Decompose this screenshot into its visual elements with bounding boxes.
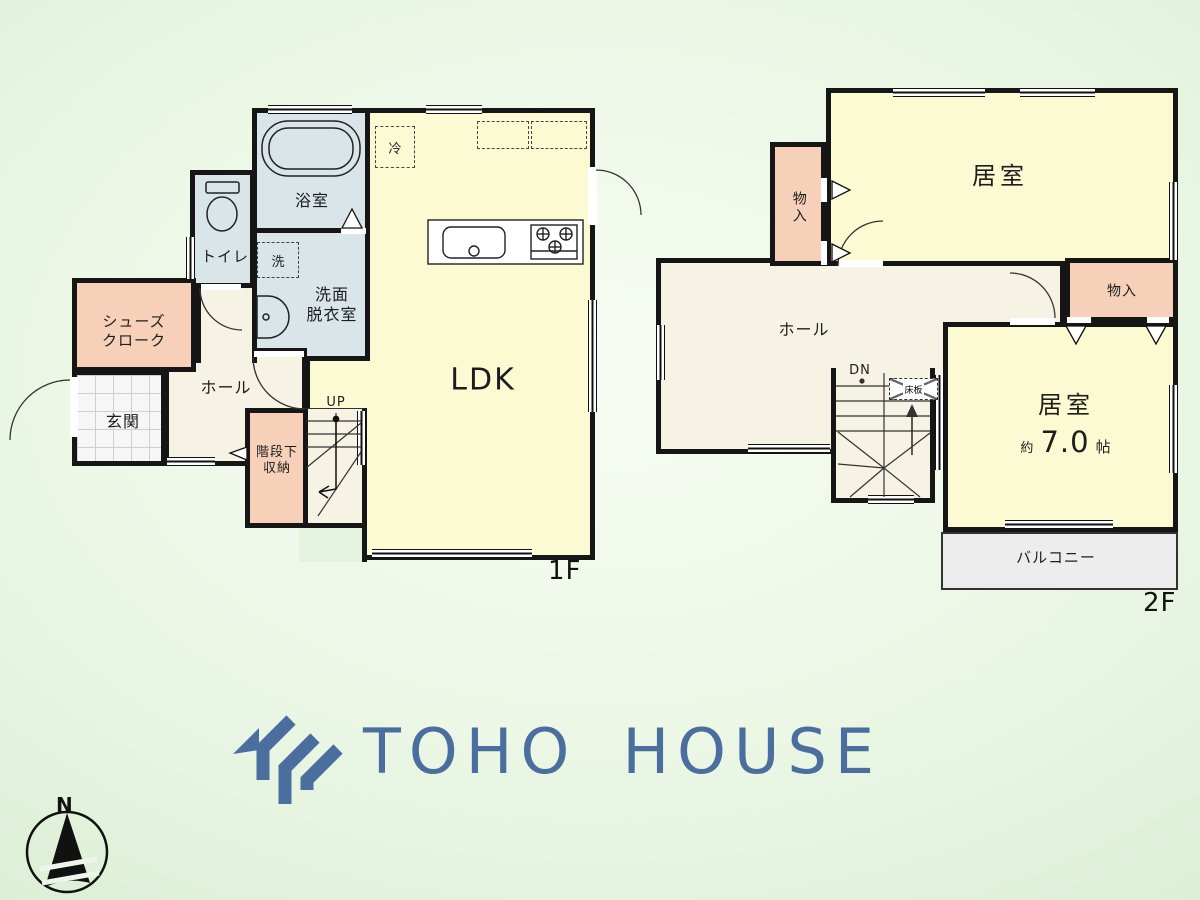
room-label-shoes-closet: シューズ クローク [102,312,166,350]
fridge-box: 冷 [375,126,415,168]
room-label-bath: 浴室 [295,191,329,211]
closet-right-label: 物入 [1107,283,1137,301]
logo: TOHO HOUSE [233,692,882,810]
door-opening [1147,317,1169,323]
door-opening [341,228,366,234]
closet-left-label: 物入 [789,191,807,225]
room-label-bedroom-right: 居室 [1038,390,1094,420]
logo-text: TOHO HOUSE [363,715,882,788]
door-opening [1067,317,1091,323]
room-label-bedroom-top: 居室 [972,161,1028,191]
window [1005,520,1113,529]
bedroom-right-size: 約 7.0 帖 [1020,424,1111,460]
cupboard-box [477,121,529,149]
window [426,105,482,114]
door-opening [254,351,304,357]
stair-up-label: UP [326,395,345,411]
window [1169,385,1178,473]
window [588,300,597,412]
room-label-ldk: LDK [450,361,516,399]
stair-dn-label: DN [849,363,871,379]
window [656,325,665,380]
door-opening [821,241,827,265]
balcony-label: バルコニー [1016,549,1096,568]
room-bath [252,108,370,233]
logo-mark-icon [233,692,345,810]
floor-board-box: 床板 [889,378,938,400]
room-label-toilet: トイレ [201,248,249,267]
floorplan-page: { "palette": { "wall": "#161616", "room_… [0,0,1200,900]
cupboard-box [531,121,587,149]
window [748,444,830,453]
window [268,105,352,114]
washer-label: 洗 [271,251,284,270]
room-toilet [190,170,255,290]
door-opening [1010,318,1055,325]
window [372,549,532,558]
window [893,88,985,97]
compass-north-label: N [56,793,73,817]
floor1-plan: 浴室 トイレ 洗面 脱衣室 シューズ クローク 玄関 ホール 階段下 収納 LD… [70,105,600,565]
background-patch [299,528,367,562]
door-opening [821,178,827,202]
door-opening [838,260,883,267]
window [357,411,366,465]
door-opening [588,167,597,225]
window [167,457,215,466]
window [868,495,914,504]
floor2-label: 2F [1143,588,1177,618]
window [1020,88,1095,97]
room-label-under-stair-storage: 階段下 収納 [256,445,298,478]
floor2-plan: 居室 物入 ホール 物入 居室 約 7.0 帖 バルコニー DN 床板 [656,88,1180,620]
room-label-washroom: 洗面 脱衣室 [306,285,357,325]
floor1-label: 1F [548,556,582,586]
washer-box: 洗 [257,242,299,278]
window [186,237,195,279]
room-label-hall-1f: ホール [200,378,251,398]
door-opening [70,377,78,437]
fridge-label: 冷 [388,138,401,157]
room-label-entrance: 玄関 [106,412,140,432]
hall-1f-arm [196,283,257,363]
compass-icon [27,812,107,892]
window [1169,182,1178,260]
room-label-hall-2f: ホール [778,320,829,340]
door-opening [201,284,241,290]
floor-board-label: 床板 [903,383,923,396]
